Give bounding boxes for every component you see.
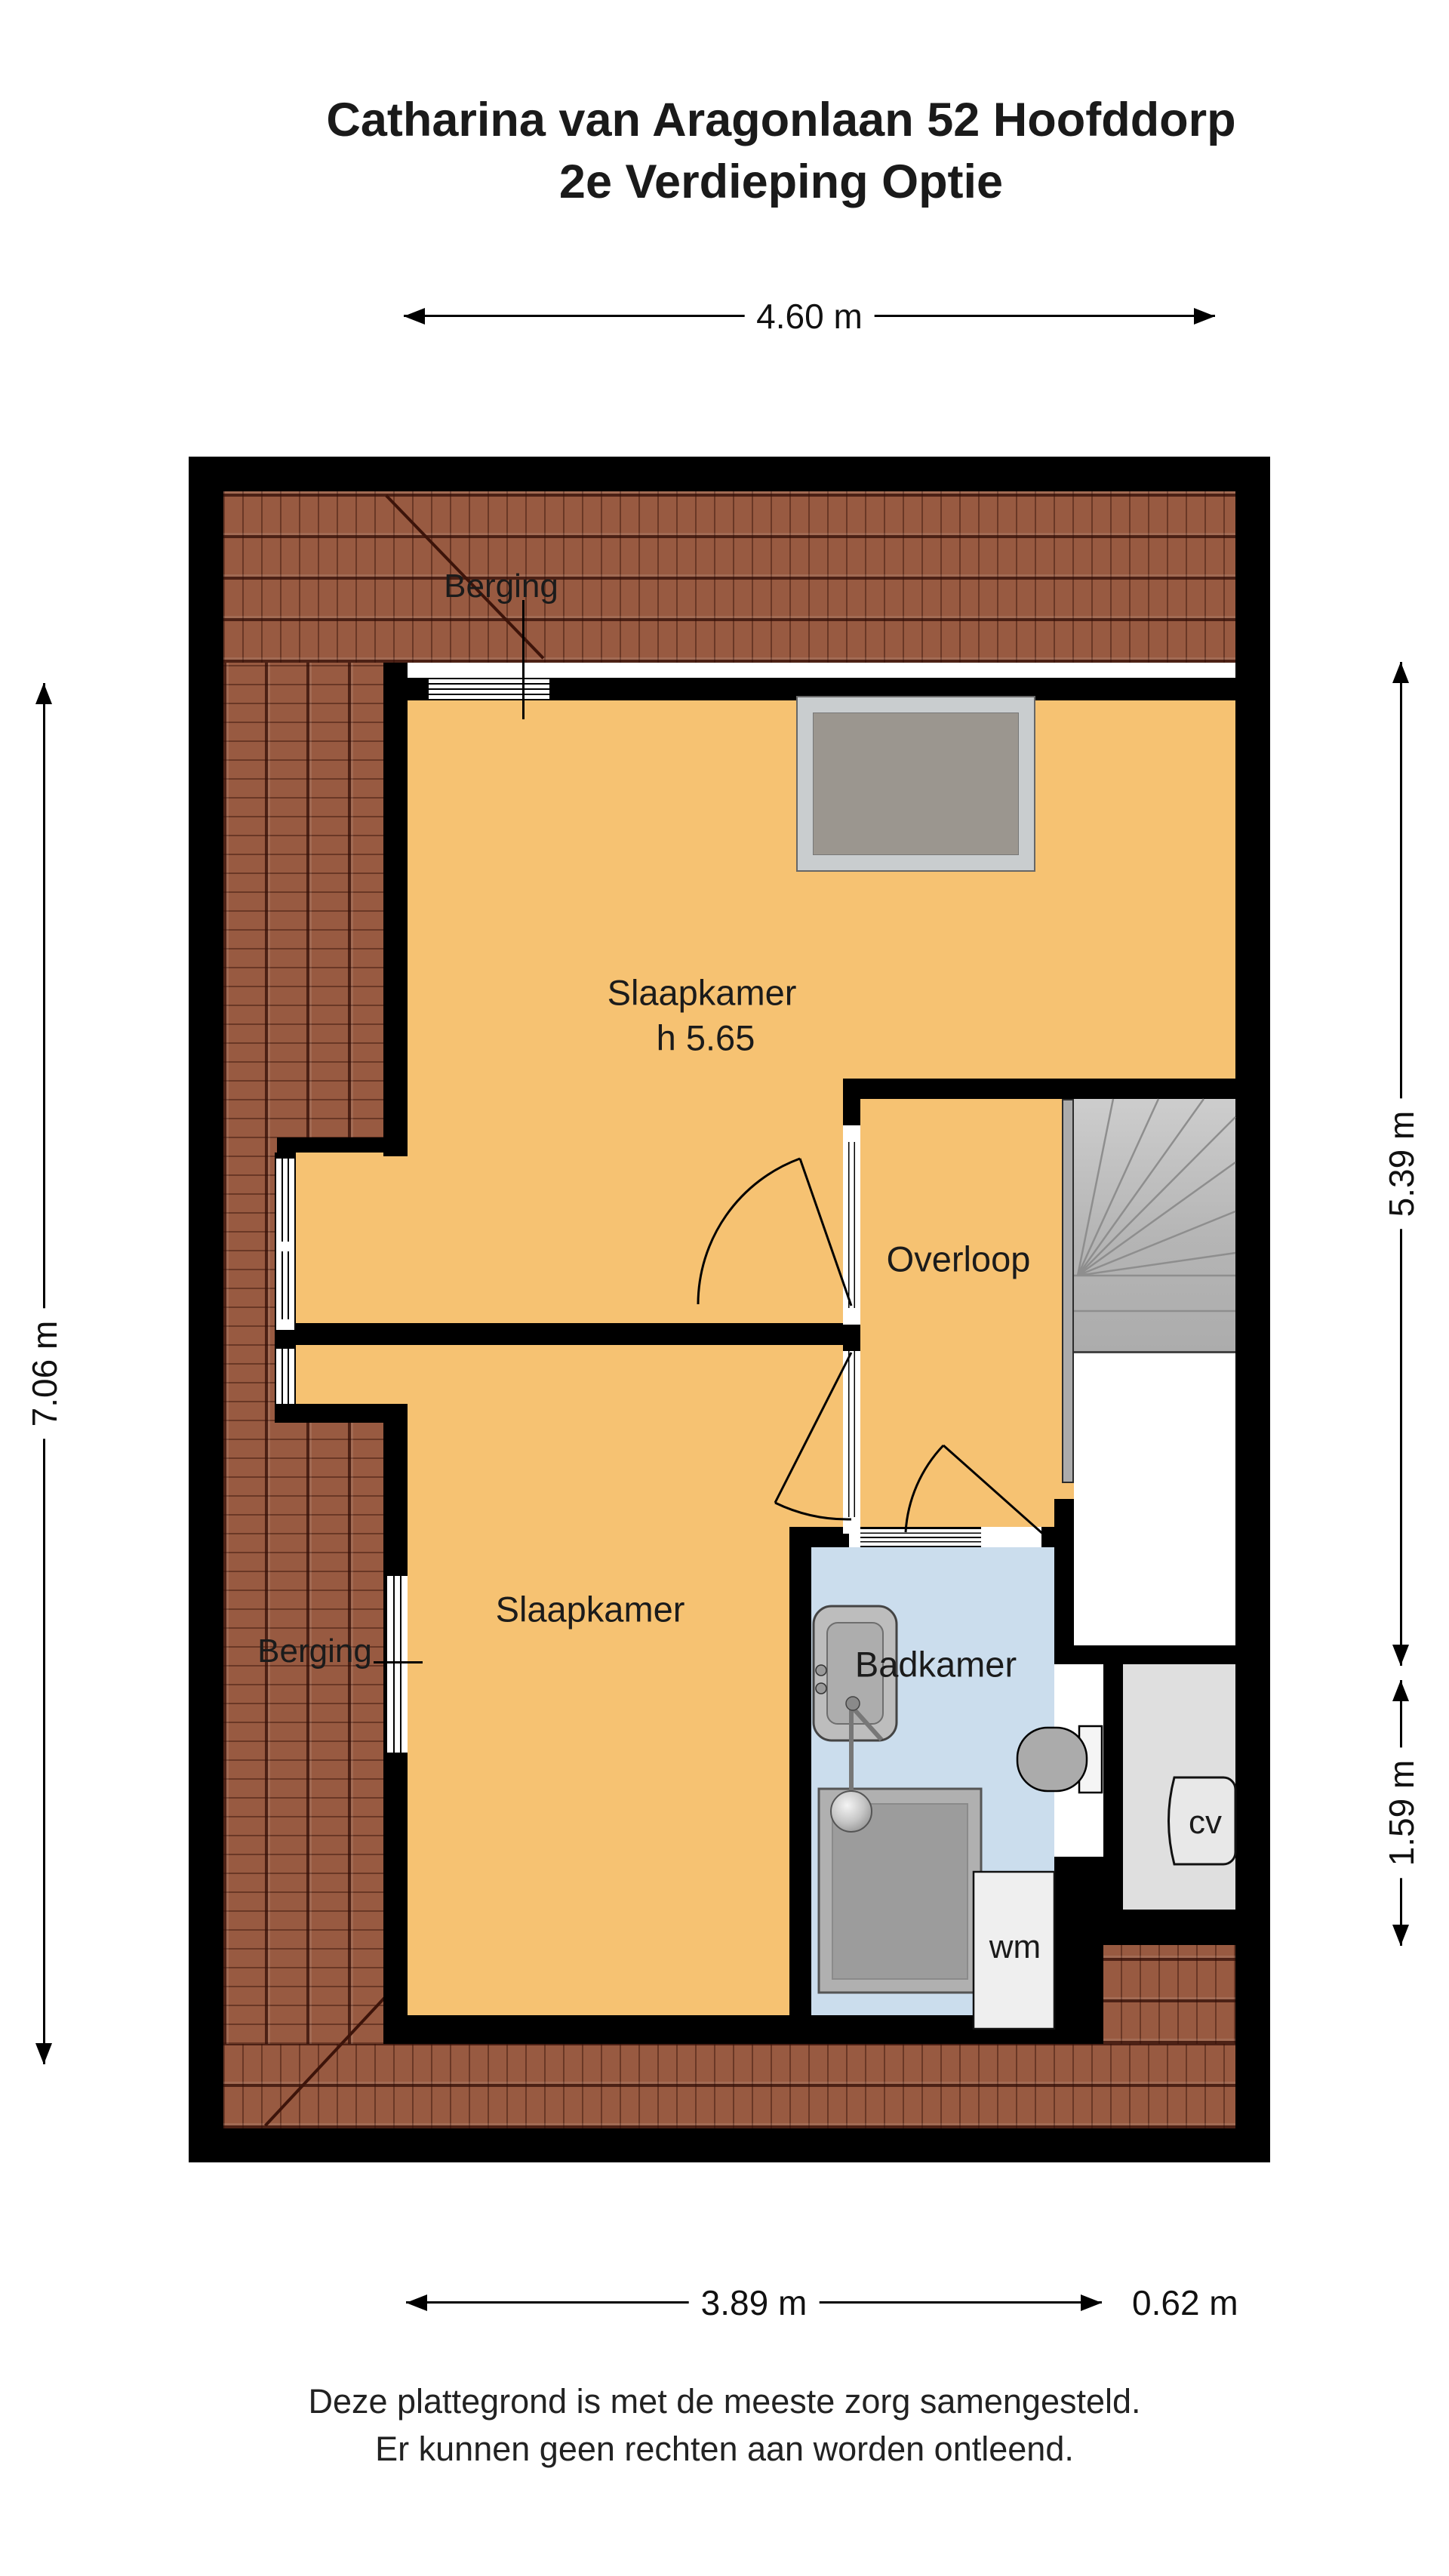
room-slaapkamer-top-floor: [408, 1079, 843, 1345]
door-jamb: [843, 1125, 860, 1142]
label-slaapkamer-bottom: Slaapkamer: [496, 1589, 685, 1630]
label-berging-left: Berging: [257, 1633, 372, 1670]
room-overloop-floor: [860, 1099, 1074, 1527]
door-overloop-slaapkamer-top: [843, 1142, 860, 1308]
dimension-right-lower-label: 1.59 m: [1381, 1748, 1422, 1879]
dimension-bottom-right-label: 0.62 m: [1132, 2285, 1238, 2320]
dimension-left: 7.06 m: [27, 683, 62, 2064]
arrowhead-down-icon: [35, 2043, 52, 2064]
roof-tiles-bottom-right: [1102, 1945, 1235, 2044]
window-top: [429, 679, 549, 699]
label-wm: wm: [989, 1928, 1041, 1966]
arrowhead-right-icon: [1081, 2294, 1102, 2311]
arrowhead-left-icon: [404, 308, 425, 325]
wall: [383, 663, 408, 1156]
wall: [287, 1323, 860, 1345]
floorplan: Berging Slaapkamer h 5.65 Overloop Slaap…: [189, 457, 1270, 2162]
window-mullion: [276, 1242, 294, 1251]
wall: [1103, 1645, 1123, 1945]
label-cv: cv: [1189, 1804, 1222, 1842]
arrowhead-left-icon: [406, 2294, 427, 2311]
disclaimer-line-2: Er kunnen geen rechten aan worden ontlee…: [0, 2425, 1449, 2473]
window-dormer-lower: [276, 1349, 294, 1404]
window-tick: [374, 1661, 423, 1663]
room-dormer-nook-floor: [296, 1153, 408, 1404]
label-badkamer: Badkamer: [855, 1644, 1017, 1685]
wall: [277, 1137, 408, 1153]
arrowhead-down-icon: [1392, 1645, 1409, 1666]
wall: [1054, 1499, 1074, 1664]
dimension-top-label: 4.60 m: [744, 296, 875, 337]
dimension-right-upper: 5.39 m: [1386, 662, 1417, 1666]
label-slaapkamer-top-height: h 5.65: [657, 1017, 755, 1059]
dimension-bottom-label: 3.89 m: [689, 2282, 820, 2323]
room-cv-floor: [1123, 1664, 1235, 1910]
dimension-bottom: 3.89 m: [406, 2285, 1102, 2320]
label-berging-top: Berging: [444, 568, 558, 605]
window-badkamer-interior: [860, 1529, 981, 1546]
page-root: { "title": { "line1": "Catharina van Ara…: [0, 0, 1449, 2576]
arrowhead-up-icon: [35, 683, 52, 704]
skylight-window: [796, 696, 1035, 872]
window-mullion: [276, 1319, 294, 1330]
wall: [275, 1404, 408, 1423]
window-dormer-upper: [276, 1251, 294, 1319]
toilet-niche-floor: [1054, 1664, 1103, 1857]
roof-tiles-top: [223, 491, 1235, 663]
window-tick: [522, 600, 525, 719]
page-title: Catharina van Aragonlaan 52 Hoofddorp 2e…: [0, 89, 1449, 213]
wall: [1074, 1645, 1235, 1664]
skylight-glass: [813, 712, 1019, 855]
door-overloop-badkamer: [994, 1527, 1041, 1547]
wall: [1054, 1857, 1103, 2044]
arrowhead-right-icon: [1194, 308, 1215, 325]
window-dormer-upper: [276, 1159, 294, 1242]
door-jamb: [843, 1308, 860, 1325]
window-left-berging: [387, 1576, 408, 1753]
dimension-right-lower: 1.59 m: [1386, 1680, 1417, 1946]
dimension-right-upper-label: 5.39 m: [1381, 1099, 1422, 1230]
label-slaapkamer-top: Slaapkamer: [608, 972, 797, 1014]
title-line-2: 2e Verdieping Optie: [113, 151, 1449, 213]
stair-void: [1074, 1353, 1235, 1645]
room-slaapkamer-bottom-floor: [408, 1345, 843, 2015]
staircase: [1074, 1099, 1235, 1353]
disclaimer: Deze plattegrond is met de meeste zorg s…: [0, 2377, 1449, 2473]
arrowhead-up-icon: [1392, 662, 1409, 683]
arrowhead-up-icon: [1392, 1680, 1409, 1701]
dimension-top: 4.60 m: [404, 299, 1215, 334]
window-end-block: [981, 1527, 994, 1547]
door-overloop-slaapkamer-bottom: [843, 1351, 860, 1517]
roof-tiles-bottom: [223, 2044, 1235, 2128]
wall: [843, 1079, 1238, 1099]
title-line-1: Catharina van Aragonlaan 52 Hoofddorp: [113, 89, 1449, 151]
wall: [1102, 1910, 1235, 1945]
wall: [789, 1527, 811, 2034]
dimension-left-label: 7.06 m: [24, 1309, 65, 1439]
stair-banister: [1062, 1099, 1074, 1483]
label-overloop: Overloop: [887, 1239, 1031, 1280]
door-jamb: [843, 1517, 860, 1534]
disclaimer-line-1: Deze plattegrond is met de meeste zorg s…: [0, 2377, 1449, 2425]
arrowhead-down-icon: [1392, 1925, 1409, 1946]
wall: [383, 2015, 1102, 2044]
stair-bottom-edge: [1074, 1351, 1235, 1353]
